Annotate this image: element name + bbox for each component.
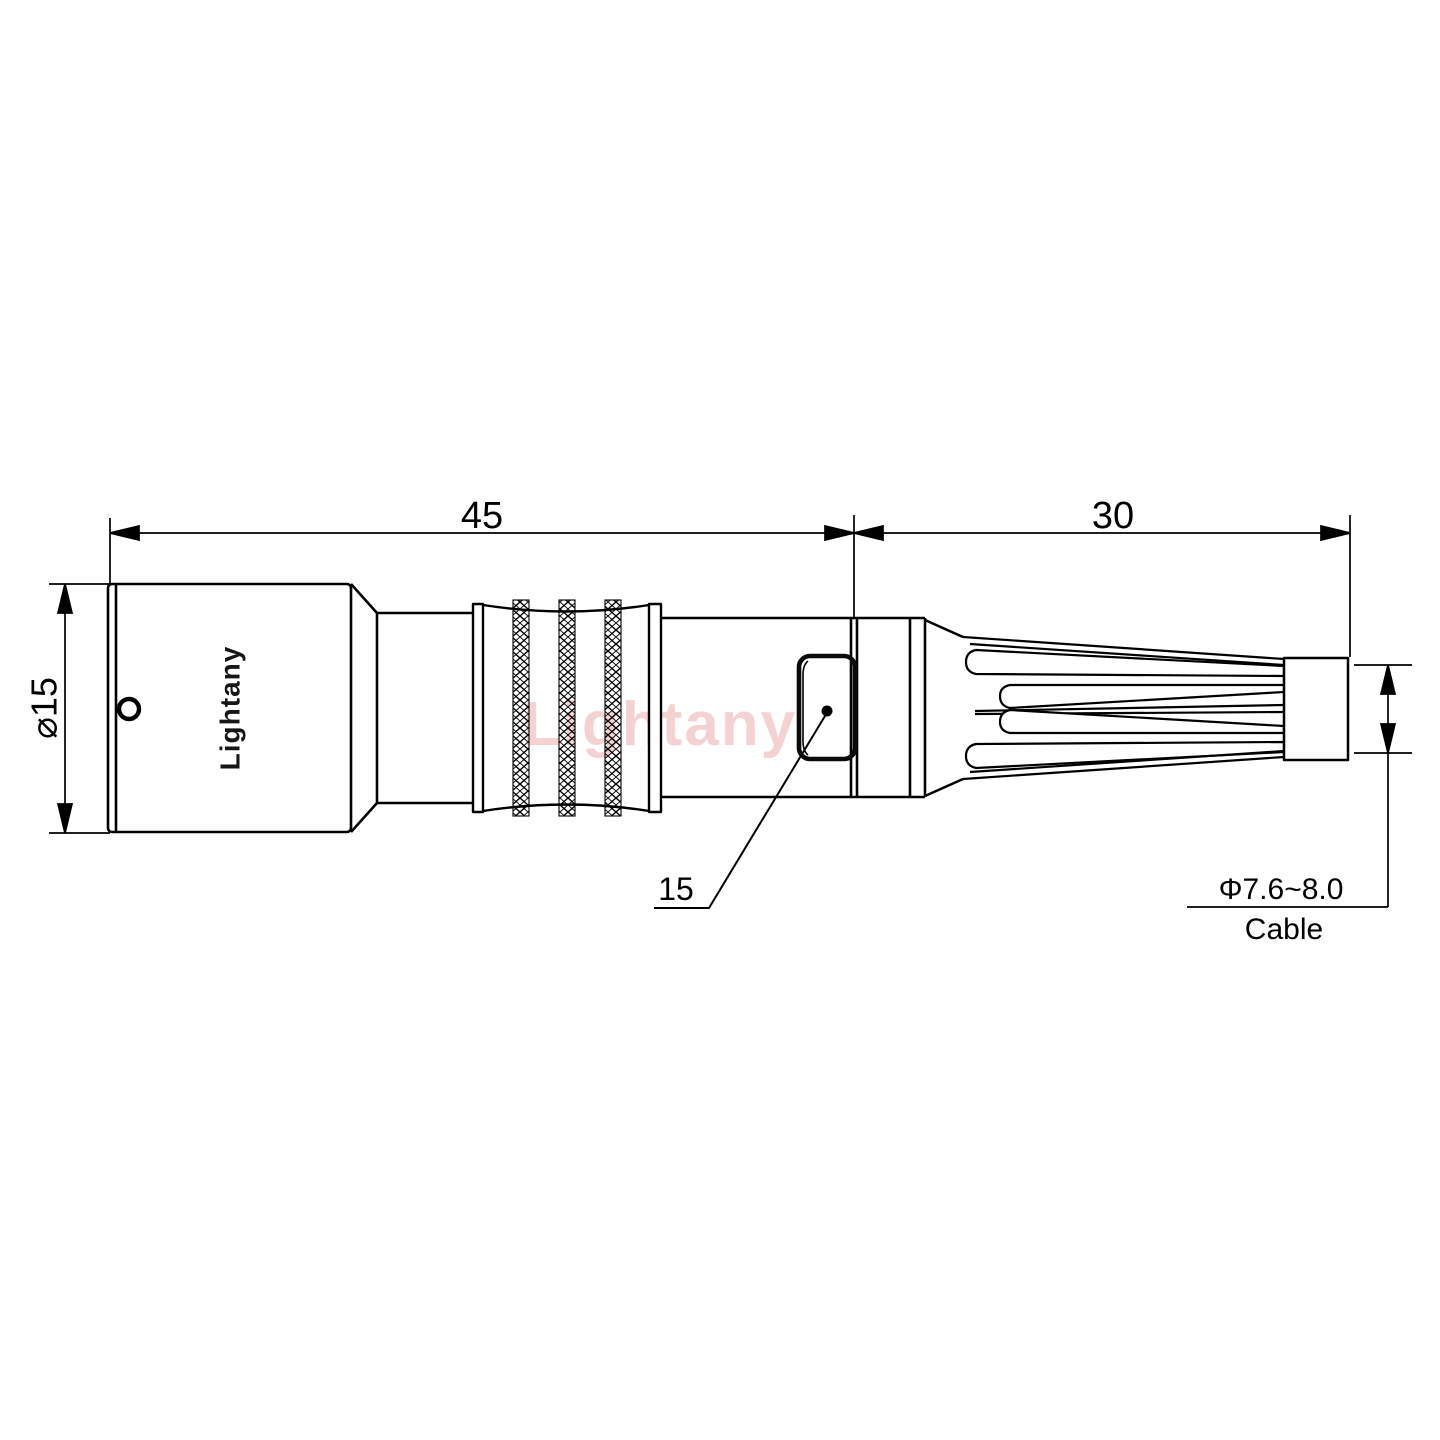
knurl-bands [513, 600, 621, 816]
dim-body-diameter-value: ⌀15 [24, 677, 65, 739]
latch-callout-value: 15 [658, 871, 694, 907]
latch-callout-dot [822, 706, 833, 717]
body-brand-text: Lightany [215, 646, 246, 771]
cable-diameter-range: Φ7.6~8.0 [1219, 873, 1344, 906]
cable-end-sleeve [1284, 658, 1348, 760]
drawing-canvas: Lightany [0, 0, 1440, 1440]
dim-rear-length-value: 30 [1092, 495, 1134, 537]
dim-front-length-value: 45 [461, 495, 503, 537]
connector-technical-drawing: Lightany [0, 0, 1440, 1440]
cable-label: Cable [1245, 913, 1323, 946]
